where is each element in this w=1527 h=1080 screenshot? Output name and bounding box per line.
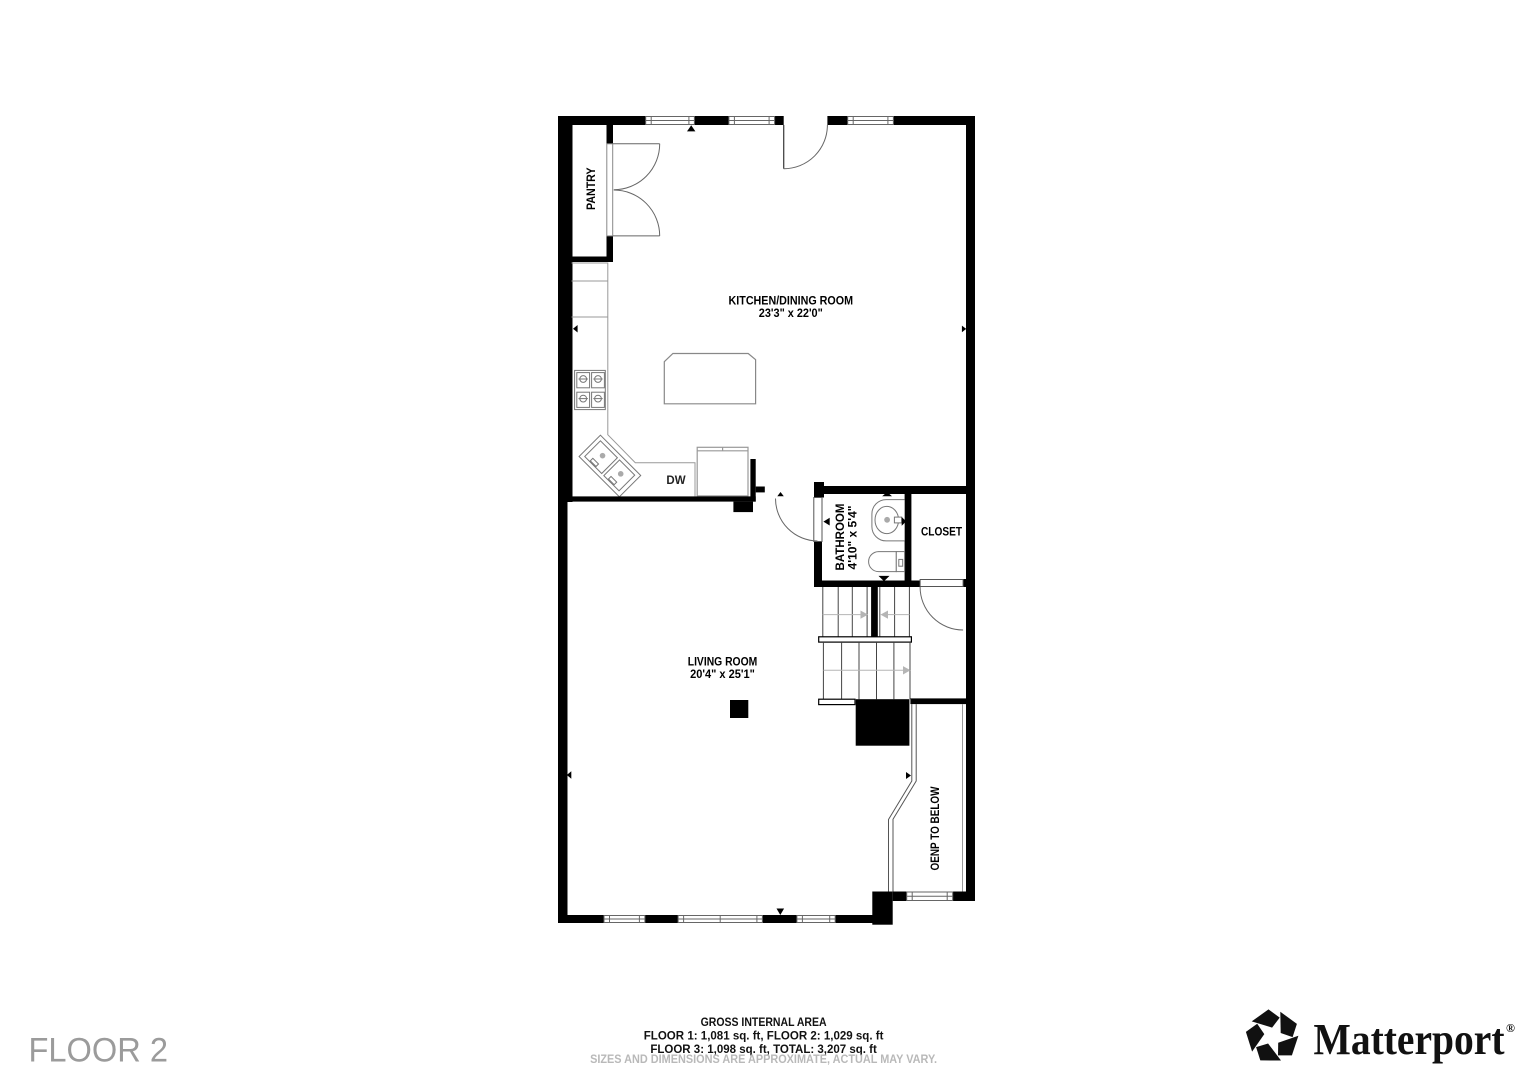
svg-text:®: ® bbox=[1506, 1021, 1515, 1035]
svg-text:PANTRY: PANTRY bbox=[586, 167, 598, 210]
svg-text:DW: DW bbox=[666, 475, 685, 487]
svg-text:20'4" x 25'1": 20'4" x 25'1" bbox=[690, 667, 755, 681]
svg-text:FLOOR 2: FLOOR 2 bbox=[29, 1032, 169, 1070]
svg-text:BATHROOM: BATHROOM bbox=[835, 504, 847, 571]
svg-text:GROSS INTERNAL AREA: GROSS INTERNAL AREA bbox=[701, 1017, 827, 1029]
svg-text:OENP TO BELOW: OENP TO BELOW bbox=[930, 786, 942, 870]
svg-text:CLOSET: CLOSET bbox=[921, 526, 962, 538]
svg-text:23'3" x 22'0": 23'3" x 22'0" bbox=[759, 306, 823, 320]
svg-text:4'10" x 5'4": 4'10" x 5'4" bbox=[848, 506, 860, 570]
svg-text:Matterport: Matterport bbox=[1314, 1015, 1505, 1064]
svg-text:FLOOR 1: 1,081 sq. ft, FLOOR 2: FLOOR 1: 1,081 sq. ft, FLOOR 2: 1,029 sq… bbox=[644, 1031, 884, 1043]
svg-text:SIZES AND DIMENSIONS ARE APPRO: SIZES AND DIMENSIONS ARE APPROXIMATE, AC… bbox=[590, 1054, 937, 1066]
